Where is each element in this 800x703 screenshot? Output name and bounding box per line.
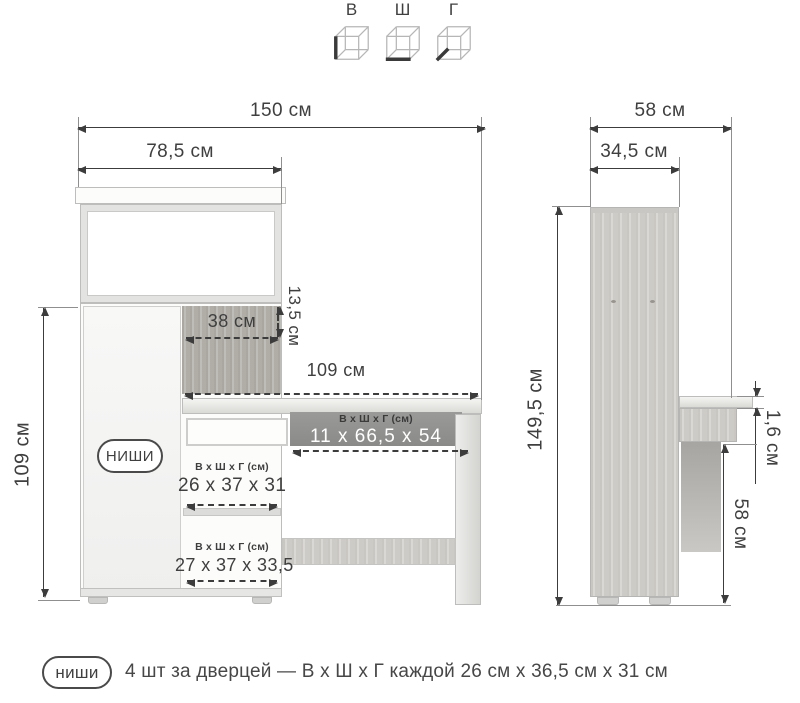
- dim-total-depth: 58 см: [600, 100, 720, 122]
- dim-line-desk-clearance: [723, 445, 724, 603]
- wood-knot: [650, 300, 655, 303]
- dim-line-cabinet-height: [43, 308, 44, 597]
- dim-line-total-height: [557, 207, 558, 605]
- legend-label-width: Ш: [395, 0, 411, 22]
- drawer-front: [186, 418, 288, 446]
- furniture-dimension-diagram: В Ш Г: [0, 0, 800, 703]
- dim-desk-clearance: 58 см: [729, 464, 751, 584]
- dim-line-niche1: [187, 504, 277, 506]
- legend-item-depth: Г: [428, 0, 479, 69]
- dim-hutch-width: 78,5 см: [120, 141, 240, 163]
- footnote-text: 4 шт за дверцей — В х Ш х Г каждой 26 см…: [125, 661, 668, 683]
- dim-desktop-thickness: 1,6 см: [761, 378, 783, 498]
- side-panel: [590, 207, 679, 597]
- under-desk-niche-header: В х Ш х Г (см): [339, 413, 413, 425]
- ext-line: [481, 117, 482, 400]
- side-foot-right: [649, 597, 671, 605]
- desk-apron-side: [679, 408, 737, 442]
- legend-label-depth: Г: [449, 0, 458, 22]
- niches-callout-label: НИШИ: [106, 448, 154, 465]
- hutch-top-panel: [75, 187, 286, 204]
- dim-line-desktop-thickness-bottom: [755, 408, 756, 484]
- dim-desk-width: 109 см: [276, 360, 396, 381]
- dim-line-total-depth: [590, 127, 731, 128]
- dim-line-desktop-thickness-top: [755, 381, 756, 396]
- height-cube-icon: [331, 22, 373, 69]
- ext-line: [281, 157, 282, 204]
- dim-line-open-niche-width: [186, 337, 278, 339]
- niche2-size: 27 х 37 х 33,5: [175, 555, 289, 576]
- dim-total-width: 150 см: [221, 100, 341, 122]
- niche1-size: 26 х 37 х 31: [178, 475, 286, 497]
- dim-line-cabinet-depth: [590, 168, 679, 169]
- width-cube-icon: [382, 22, 424, 69]
- dim-cabinet-height: 109 см: [12, 405, 35, 505]
- under-desk-niche-size: 11 х 66,5 х 54: [310, 426, 442, 448]
- dim-line-total-width: [78, 127, 485, 128]
- dimension-legend: В Ш Г: [326, 0, 479, 69]
- dim-line-desk-width: [185, 393, 478, 395]
- dim-total-height: 149,5 см: [525, 350, 548, 470]
- legend-label-height: В: [346, 0, 357, 22]
- depth-cube-icon: [433, 22, 475, 69]
- dim-line-under-desk: [293, 450, 468, 452]
- dim-line-open-niche-height: [277, 307, 279, 337]
- desk-crossbar: [282, 538, 456, 565]
- dim-open-niche-width: 38 см: [182, 311, 282, 332]
- ext-line: [38, 600, 80, 601]
- hutch-open-shelf: [80, 204, 282, 303]
- ext-line: [679, 157, 680, 207]
- footnote-badge-label: ниши: [55, 663, 98, 683]
- niches-callout: НИШИ: [97, 439, 163, 473]
- ext-line: [731, 117, 732, 398]
- cabinet-plinth: [80, 588, 282, 597]
- desktop-side: [679, 396, 753, 408]
- tower-shelf: [183, 508, 281, 516]
- footnote-badge: ниши: [42, 656, 112, 689]
- legend-item-height: В: [326, 0, 377, 69]
- desk-leg-front: [455, 414, 481, 605]
- cabinet-foot-left: [88, 597, 108, 604]
- floor-line: [556, 605, 731, 606]
- cabinet-foot-right: [252, 597, 272, 604]
- dim-line-hutch-width: [78, 168, 281, 169]
- wood-knot: [611, 300, 616, 303]
- side-foot-left: [597, 597, 619, 605]
- desk-leg-side: [681, 442, 721, 552]
- dim-line-niche2: [187, 580, 277, 582]
- niche2-header: В х Ш х Г (см): [182, 541, 282, 553]
- legend-item-width: Ш: [377, 0, 428, 69]
- niche1-header: В х Ш х Г (см): [182, 461, 282, 473]
- dim-open-niche-height: 13,5 см: [284, 266, 304, 366]
- dim-cabinet-depth: 34,5 см: [574, 141, 694, 163]
- under-desk-niche: В х Ш х Г (см) 11 х 66,5 х 54: [290, 412, 462, 446]
